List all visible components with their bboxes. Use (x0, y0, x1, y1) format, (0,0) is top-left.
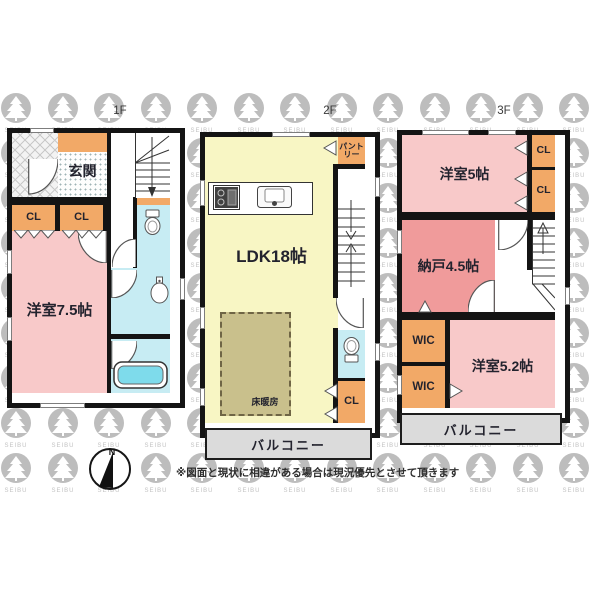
closet-3f-top-label: CL (532, 135, 555, 167)
closet-door-mark (514, 140, 528, 156)
svg-text:SEIBU: SEIBU (423, 488, 446, 494)
closet-fold-doors (14, 230, 55, 239)
closet-door-mark (324, 383, 338, 399)
watermark-badge: SEIBU (229, 92, 269, 136)
storage-door-arc (468, 280, 495, 312)
sink-icon (150, 276, 169, 304)
bedroom-52-door-mark (449, 383, 463, 399)
svg-text:SEIBU: SEIBU (516, 488, 539, 494)
watermark-badge: SEIBU (508, 452, 548, 496)
floor-heating-area: 床暖房 (220, 312, 291, 416)
floor-label-2f: 2F (315, 105, 345, 117)
wic-top-label: WIC (402, 320, 445, 362)
kitchen-sink-icon (257, 186, 292, 208)
window (200, 180, 205, 206)
window (30, 128, 54, 133)
window (375, 177, 380, 197)
window (40, 403, 85, 408)
window (397, 230, 402, 254)
window (422, 130, 469, 135)
washroom-door-arc (111, 270, 137, 298)
svg-text:SEIBU: SEIBU (376, 443, 399, 449)
watermark-badge: SEIBU (0, 407, 36, 451)
ldk-label: LDK18帖 (210, 245, 333, 269)
genkan-label: 玄関 (58, 161, 107, 181)
wall (12, 197, 111, 205)
bedroom-75-label: 洋室7.5帖 (12, 301, 107, 321)
wall (107, 133, 111, 205)
floor-label-3f: 3F (489, 105, 519, 117)
watermark-badge: SEIBU (554, 452, 594, 496)
compass-icon: N (86, 442, 134, 494)
floor-heating-label: 床暖房 (244, 397, 286, 409)
svg-text:SEIBU: SEIBU (4, 443, 27, 449)
floorplan-page: SEIBUSEIBUSEIBUSEIBUSEIBUSEIBUSEIBUSEIBU… (0, 0, 600, 600)
watermark-badge: SEIBU (275, 92, 315, 136)
wall (402, 312, 555, 320)
closet-3f-bottom-label: CL (532, 170, 555, 212)
closet-fold-doors (62, 230, 103, 239)
svg-text:SEIBU: SEIBU (562, 488, 585, 494)
svg-text:SEIBU: SEIBU (283, 488, 306, 494)
window (565, 287, 570, 305)
storage-label: 納戸4.5帖 (402, 257, 495, 275)
toilet-shelf (137, 197, 170, 205)
stairs-2f (338, 200, 365, 287)
bedroom-52-label: 洋室5.2帖 (450, 357, 555, 375)
window (180, 278, 185, 300)
watermark-badge: SEIBU (43, 407, 83, 451)
plan-3f: 洋室5帖 CL CL 納戸4.5帖 (397, 130, 570, 423)
genkan-cabinet (58, 133, 107, 152)
plan-1f: 玄関 CL (7, 128, 185, 408)
hall-door-arc (498, 220, 528, 250)
watermark-badge: SEIBU (136, 452, 176, 496)
bathtub-icon (113, 361, 168, 389)
stairs-3f (532, 220, 555, 312)
toilet2f-door-arc (336, 298, 364, 328)
balcony-3f-label: バルコニー (444, 420, 519, 439)
svg-text:SEIBU: SEIBU (144, 443, 167, 449)
balcony-3f: バルコニー (400, 413, 562, 445)
pantry-door-mark (323, 140, 337, 156)
disclaimer-text: ※図面と現状に相違がある場合は現況優先とさせて頂きます (176, 465, 459, 480)
window (488, 130, 516, 135)
watermark-badge: SEIBU (461, 452, 501, 496)
closet-2f-label: CL (338, 381, 365, 423)
window (200, 388, 205, 406)
wall (402, 212, 555, 220)
wic-bottom-label: WIC (402, 366, 445, 408)
svg-text:SEIBU: SEIBU (4, 488, 27, 494)
window (272, 132, 310, 137)
balcony-2f: バルコニー (205, 428, 372, 460)
svg-text:SEIBU: SEIBU (190, 488, 213, 494)
svg-text:SEIBU: SEIBU (330, 488, 353, 494)
svg-text:SEIBU: SEIBU (376, 488, 399, 494)
plan-2f: パントリー (200, 132, 380, 438)
toilet-icon (143, 209, 163, 236)
entry-door-arc (28, 159, 58, 195)
watermark-badge: SEIBU (136, 407, 176, 451)
svg-text:SEIBU: SEIBU (562, 443, 585, 449)
floor-label-1f: 1F (105, 105, 135, 117)
wall (111, 334, 170, 339)
compass-north-label: N (109, 447, 116, 457)
closet-door-mark (324, 406, 338, 422)
closet-door-mark (514, 195, 528, 211)
svg-text:SEIBU: SEIBU (469, 488, 492, 494)
watermark-badge: SEIBU (43, 452, 83, 496)
watermark-badge: SEIBU (0, 452, 36, 496)
closet-right-label: CL (60, 205, 103, 231)
closet-left-label: CL (12, 205, 55, 231)
stairs-down-arrow (148, 187, 156, 197)
window (375, 343, 380, 361)
svg-text:SEIBU: SEIBU (51, 443, 74, 449)
pantry-label: パントリー (338, 138, 365, 164)
toilet-door-arc (112, 239, 136, 267)
balcony-2f-label: バルコニー (251, 435, 326, 454)
window (7, 250, 12, 274)
stairs-1f (135, 133, 170, 198)
wall (103, 205, 111, 231)
svg-text:SEIBU: SEIBU (51, 488, 74, 494)
watermark-badge: SEIBU (182, 92, 222, 136)
svg-text:SEIBU: SEIBU (144, 488, 167, 494)
bedroom-5-label: 洋室5帖 (402, 165, 527, 183)
toilet-icon (342, 336, 362, 363)
window (200, 307, 205, 329)
wic-door-mark (418, 300, 432, 313)
closet-door-mark (514, 171, 528, 187)
stove-icon (213, 185, 240, 210)
wall (338, 164, 365, 169)
svg-text:SEIBU: SEIBU (237, 488, 260, 494)
